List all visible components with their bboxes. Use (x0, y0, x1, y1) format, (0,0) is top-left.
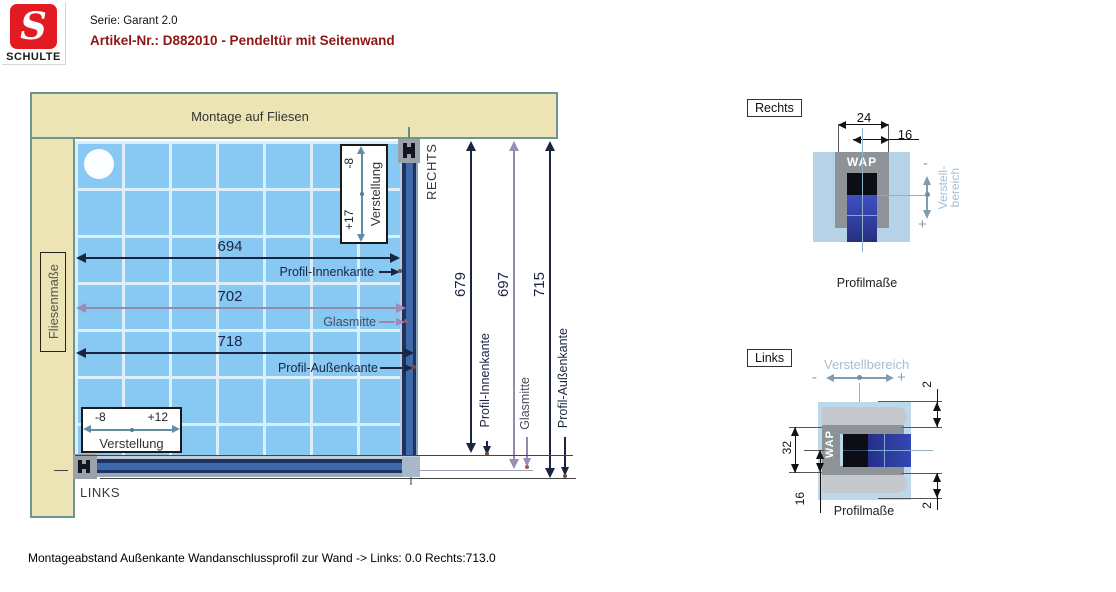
dim-718-line (85, 352, 405, 354)
ext-tick-left (54, 470, 68, 471)
rechts-dim16-arrow-left (853, 136, 861, 144)
links-range-plus: + (897, 369, 906, 386)
dim-694-value: 694 (195, 238, 265, 255)
drain-circle (84, 149, 114, 179)
ptr-innenkante-dot (398, 269, 402, 273)
rechts-centerline (862, 128, 863, 252)
ptr-glasmitte-dot (404, 319, 408, 323)
links-dim2top-arrow-down (933, 418, 941, 427)
adjust-right-label: Verstellung (368, 146, 383, 242)
links-dim16-value: 16 (793, 492, 807, 505)
vptr-glasmitte-dot (525, 465, 529, 469)
dim-715-arrow-bottom (545, 468, 555, 478)
footer-note: Montageabstand Außenkante Wandanschlussp… (28, 551, 496, 565)
article-title: Artikel-Nr.: D882010 - Pendeltür mit Sei… (90, 33, 395, 48)
label-profil-innenkante: Profil-Innenkante (246, 265, 374, 279)
links-range-arrow-right (886, 374, 894, 382)
rechts-dim24-ext-left (838, 124, 839, 152)
label-glasmitte: Glasmitte (300, 315, 376, 329)
ext-line-inner (75, 455, 573, 456)
dim-679-line (470, 150, 472, 444)
rechts-center-link-line (878, 195, 927, 196)
page: S SCHULTE Serie: Garant 2.0 Artikel-Nr.:… (0, 0, 1116, 592)
logo-wordmark: SCHULTE (2, 51, 65, 63)
ext-line-glasmitte (418, 470, 533, 471)
links-dim2bot-arrow-down (933, 489, 941, 498)
links-dim2bot-arrow-up (933, 473, 941, 482)
dim-679-arrow-bottom (466, 443, 476, 453)
rechts-wap-leg-left (835, 173, 847, 228)
logo-red-square: S (10, 4, 57, 49)
rechts-wap-leg-right (877, 173, 889, 228)
wall-top-label: Montage auf Fliesen (140, 109, 360, 124)
dim-702-value: 702 (195, 288, 265, 305)
vlabel-glasmitte: Glasmitte (518, 377, 532, 430)
links-wap-label: WAP (824, 430, 836, 458)
rechts-range-dot (925, 192, 930, 197)
links-dim16-arrow-up (816, 450, 824, 459)
dim-715-value: 715 (531, 272, 548, 297)
links-glass-ext-line (911, 450, 933, 451)
rechts-dim16-arrow-right (881, 136, 889, 144)
adjust-left-plus: +12 (148, 410, 168, 424)
label-profil-aussenkante: Profil-Außenkante (244, 361, 378, 375)
links-dim2top-value: 2 (920, 381, 934, 388)
side-label-links: LINKS (80, 485, 120, 500)
corner-connector (402, 457, 420, 477)
vlabel-profil-aussenkante: Profil-Außenkante (556, 328, 570, 428)
links-dim16-line (820, 450, 821, 513)
dim-718-value: 718 (195, 333, 265, 350)
side-label-rechts: RECHTS (424, 140, 439, 200)
links-dim2bot-value: 2 (920, 502, 934, 509)
dim-715-line (549, 150, 551, 470)
right-wall-profile (400, 141, 418, 456)
dim-697-value: 697 (495, 272, 512, 297)
detail-links-title: Links (747, 349, 792, 367)
rechts-caption: Profilmaße (836, 276, 898, 290)
vptr-aussenkante-line (564, 437, 566, 468)
links-outer-bar-top (822, 407, 907, 426)
dim-697-arrow-bottom (509, 459, 519, 469)
links-dim32-arrow-up (791, 427, 799, 436)
links-outer-bar-bottom (822, 474, 907, 493)
logo-s-glyph: S (20, 8, 47, 45)
links-dim32-arrow-down (791, 464, 799, 473)
dim-702-arrow-right (396, 303, 406, 313)
links-dim2top-ext2 (902, 427, 942, 428)
links-glass-hline (868, 450, 911, 451)
links-range-dot (857, 375, 862, 380)
series-label: Serie: Garant 2.0 (90, 15, 178, 27)
adjust-left-minus: -8 (95, 410, 106, 424)
dim-679-value: 679 (452, 272, 469, 297)
adjust-left-range-arrow (83, 424, 180, 436)
links-dim32-value: 32 (780, 441, 794, 454)
dim-694-line (85, 257, 391, 259)
rechts-range-label-line2: bereich (948, 168, 962, 207)
links-caption: Profilmaße (833, 504, 895, 518)
ptr-glasmitte-line (379, 321, 395, 323)
left-clamp-icon (78, 460, 90, 473)
bottom-profile (75, 456, 420, 477)
links-dim16-arrow-down (816, 463, 824, 472)
links-dim2top-arrow-up (933, 402, 941, 411)
vlabel-profil-innenkante: Profil-Innenkante (478, 333, 492, 428)
rechts-range-minus: - (923, 155, 928, 172)
links-dim2bot-ext2 (878, 498, 942, 499)
ext-line-outer (100, 478, 576, 479)
rechts-range-line (926, 184, 928, 210)
adjust-right-plus: +17 (342, 210, 356, 230)
adjust-left-label: Verstellung (83, 436, 180, 451)
dim-694-arrow-right (390, 253, 400, 263)
dim-702-line (85, 307, 397, 309)
right-clamp-icon (403, 143, 415, 158)
cap-tick (408, 127, 410, 139)
dim-718-arrow-right (404, 348, 414, 358)
rechts-dim24-arrow-left (838, 121, 846, 129)
detail-rechts-title: Rechts (747, 99, 802, 117)
dim-697-line (513, 150, 515, 461)
adjust-right-minus: -8 (342, 158, 356, 169)
schulte-logo: S SCHULTE (2, 2, 66, 65)
links-range-minus: - (812, 369, 817, 386)
adjustment-box-left: -8 +12 Verstellung (81, 407, 182, 453)
rechts-range-plus: + (918, 216, 927, 233)
fliesenmasse-box: Fliesenmaße (40, 252, 66, 352)
adjust-right-range-arrow (356, 146, 368, 242)
ptr-aussenkante-dot (412, 365, 416, 369)
links-range-arrow-left (826, 374, 834, 382)
adjustment-box-right: +17 -8 Verstellung (340, 144, 388, 244)
fliesenmasse-label: Fliesenmaße (46, 264, 61, 339)
ptr-aussenkante-line (380, 367, 402, 369)
links-holder-line (843, 450, 868, 451)
